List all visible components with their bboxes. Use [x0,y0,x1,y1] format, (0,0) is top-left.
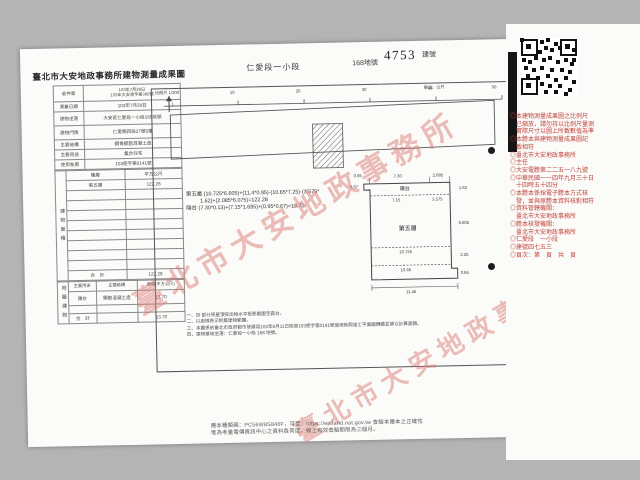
ruler-tick-3: 30 [362,87,367,92]
land-section: 仁愛段一小段 [246,61,300,73]
dim-11_45: 11.45 [406,289,416,294]
stamp-line: 臺北市大安地政事務所 [510,214,640,222]
stamp-line: ◎仁愛段 一小段 [510,237,640,245]
building-number: 4753 [384,47,416,64]
dim-7_15: 7.15 [392,197,400,202]
structure-label: 主要結構 [54,139,85,150]
fifth-floor-label: 第五層 [399,223,417,232]
dim-0_95: 0.95 [354,173,362,178]
ruler-tick-2: 20 [296,88,301,93]
stamp-line: ◎建號四七五三 [510,245,640,253]
dim-10_725: 10.725 [399,249,412,254]
stamp-line: ◎本謄本與建物測量成果圖記 [510,137,640,145]
qr-finder-icon [560,39,577,56]
hatched-roof-projection [313,123,344,168]
fifth-floor-plan: 0.95 0.67 7.30 2.085 1.62 陽台 7.15 3.575 … [341,168,484,311]
stamp-line: ◎謄本核發機關： [510,222,640,230]
annex-total-label: 合 計 [69,313,97,324]
survey-chart-page: 臺北市大安地政事務所建物測量成果圖 仁愛段一小段 168地號 4753 建號 收… [20,39,524,447]
dim-1_62: 1.62 [459,185,467,190]
ruler-tick-4: 40 [428,86,433,91]
stamp-line: 載相符 [510,145,640,153]
transcript-footer: 謄本種類碼：PC56W8S846F，可至：https://ep.land.nat… [211,417,521,437]
stamp-line: ◎臺北市大安地政事務所 [510,153,640,161]
qr-modules [520,38,524,42]
lot-number: 168地號 [352,58,378,69]
survey-date-label: 測量日期 [54,101,85,112]
page-title: 臺北市大安地政事務所建物測量成果圖 [32,68,185,83]
plan-frame: 比例尺 1/300 單位：公尺 10 20 30 40 50 [151,81,515,372]
dim-2_085: 2.085 [433,172,444,177]
dim-2_25: 2.25 [460,252,468,257]
stamp-line: 實際尺寸以圖上所載數值為準 [510,129,640,137]
dim-0_67: 0.67 [350,184,358,189]
ruler-tick-5: 50 [492,84,497,89]
balcony-label: 陽台 [400,185,410,192]
certification-strip: ◎本建物測量成果圖之比例尺 已縮放，請勿持以比例尺量測 實際尺寸以圖上所載數值為… [506,24,640,460]
red-stamp-text: ◎本建物測量成果圖之比例尺 已縮放，請勿持以比例尺量測 實際尺寸以圖上所載數值為… [510,114,640,260]
qr-finder-icon [521,78,538,95]
floor-outline-drawing [162,94,507,173]
annex-usage: 陽台 [68,291,96,306]
stamp-line: ◎主任 [510,160,640,168]
building-number-label: 建號 [422,50,436,60]
scanned-document-view: 臺北市大安地政事務所建物測量成果圖 仁愛段一小段 168地號 4753 建號 收… [0,0,640,480]
usage-label: 主要用途 [55,149,86,160]
dim-10_65: 10.65 [401,267,412,272]
dim-3_575: 3.575 [432,196,443,201]
plan-notes: 一、▨ 部分係屋頂突出物水平投影範圍至露台。 二、以虛線表示附屬建物範圍。 三、… [186,308,432,339]
annex-side-label: 附屬建物 [57,282,69,324]
stamp-line: 十四時五十四分 [510,183,640,191]
annex-col-usage: 主要用途 [68,281,96,292]
stamp-line: ◎頁次：第 頁 共 頁 [510,253,640,261]
punch-hole [488,263,495,270]
dim-6_605: 6.605 [459,220,470,225]
stamp-line: ◎本謄本係採電子謄本方式核 [510,191,640,199]
qr-code [520,38,578,96]
stamp-line: ◎資料管轄機關： [510,206,640,214]
license-label: 使用執照 [55,159,86,170]
area-total-label: 合 計 [68,270,127,281]
stamp-line: ◎本建物測量成果圖之比例尺 [510,114,640,122]
address-label: 建物門牌 [54,125,85,140]
punch-hole [488,147,495,154]
location-label: 建物坐落 [54,111,85,126]
receipt-label: 收件章 [53,85,84,102]
dim-0_84: 0.84 [461,270,469,275]
ruler-tick-1: 10 [230,90,235,95]
stamp-line: ◎大安電謄第二二五一八九號 [510,168,640,176]
annex-structure: 鋼筋混凝土造 [96,290,137,305]
dim-7_30: 7.30 [394,173,402,178]
